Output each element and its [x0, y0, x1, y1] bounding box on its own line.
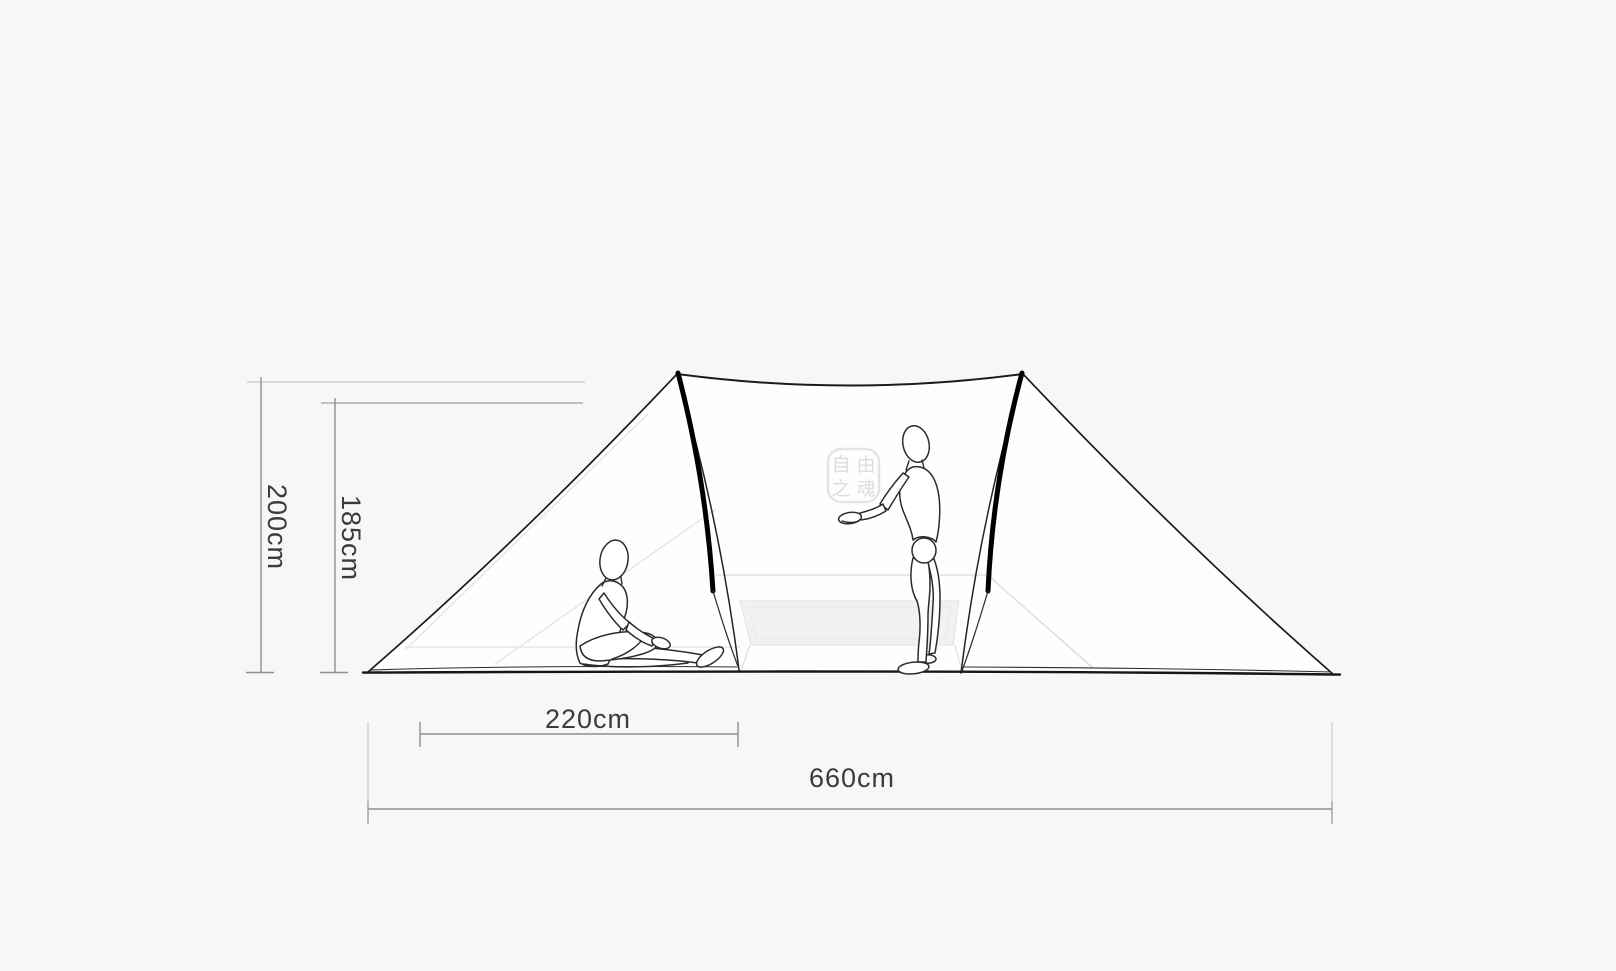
dim-vestibule-width: 220cm: [420, 704, 738, 747]
dim-total-width: 660cm: [368, 722, 1332, 824]
dim-label-220: 220cm: [545, 704, 631, 734]
seal-char-4: 魂: [856, 478, 875, 500]
diagram-canvas: 自 由 之 魂: [0, 0, 1616, 971]
seal-char-2: 由: [856, 454, 875, 476]
tent-dimension-diagram: 自 由 之 魂: [0, 0, 1616, 971]
dim-label-660: 660cm: [809, 763, 895, 793]
dim-label-200: 200cm: [262, 484, 292, 570]
seal-char-1: 自: [831, 454, 850, 476]
dim-label-185: 185cm: [336, 495, 366, 581]
seal-char-3: 之: [831, 478, 850, 500]
standing-pelvis: [912, 538, 936, 563]
